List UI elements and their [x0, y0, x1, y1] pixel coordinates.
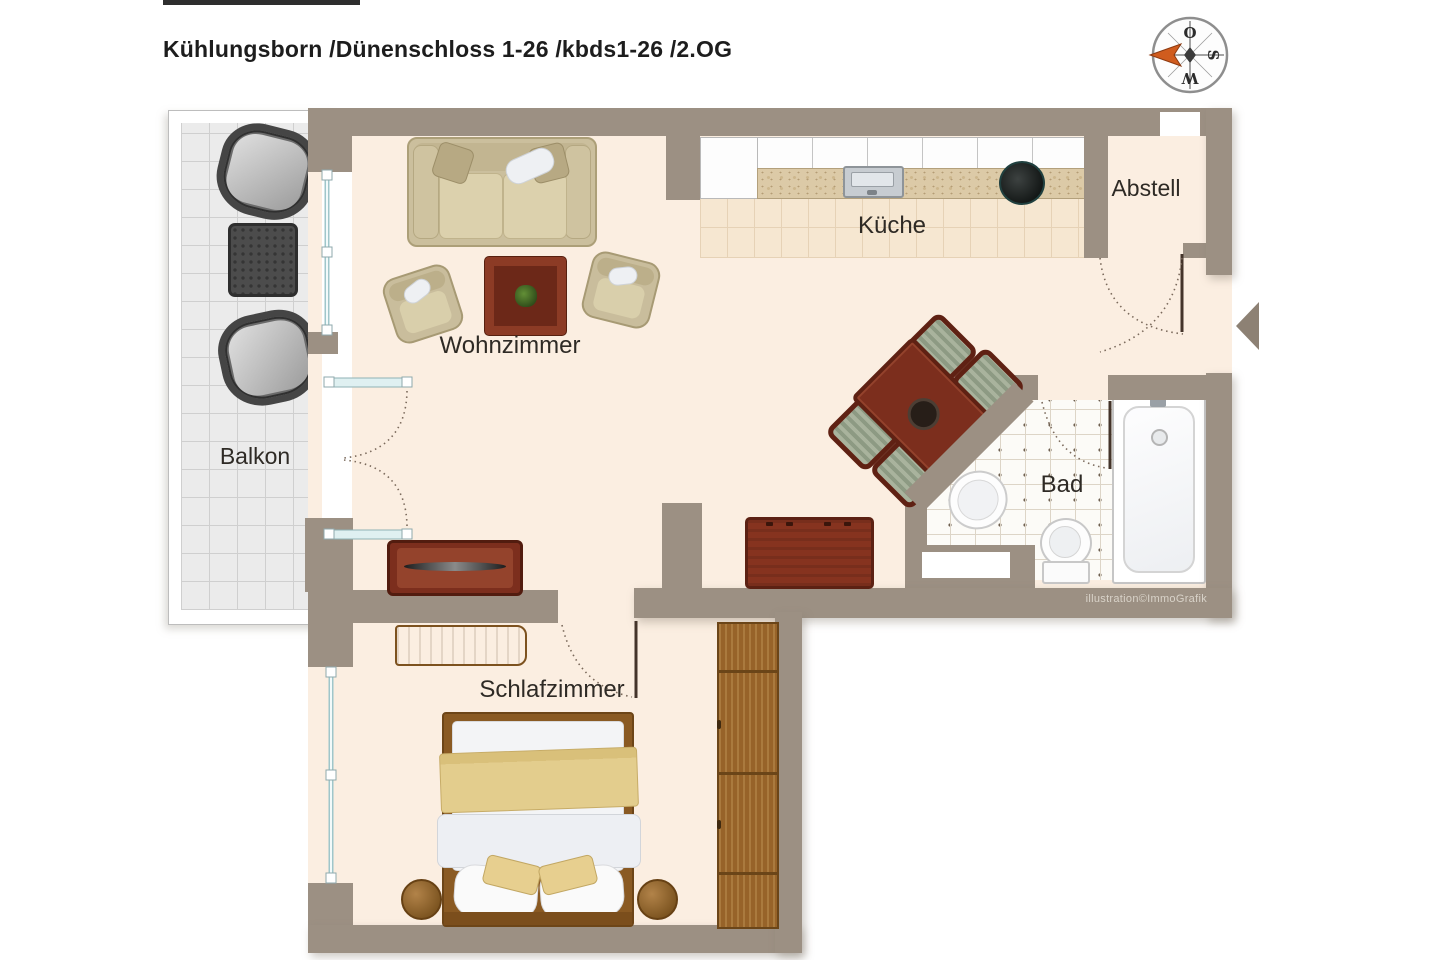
- balcony-window: [322, 170, 332, 335]
- label-kitchen: Küche: [842, 212, 942, 240]
- balcony-door[interactable]: [324, 377, 412, 539]
- entrance-door[interactable]: [1100, 254, 1183, 352]
- label-bath: Bad: [1030, 471, 1094, 499]
- plan-overlay: O S W: [0, 0, 1440, 960]
- entrance-arrow-icon: [1236, 302, 1259, 350]
- label-bedroom: Schlafzimmer: [472, 676, 632, 704]
- illustration-credit: illustration©ImmoGrafik: [995, 593, 1207, 605]
- bedroom-window: [326, 667, 336, 883]
- compass-east-label: O: [1183, 24, 1196, 42]
- compass-south-label: S: [1204, 50, 1222, 61]
- compass-icon: O S W: [1150, 18, 1227, 92]
- compass-west-label: W: [1180, 69, 1199, 87]
- wall-bath-diagonal: [914, 392, 1024, 502]
- floor-plan-page: Kühlungsborn /Dünenschloss 1-26 /kbds1-2…: [0, 0, 1440, 960]
- label-balcony: Balkon: [205, 443, 305, 470]
- label-living-room: Wohnzimmer: [425, 332, 595, 360]
- label-storage: Abstell: [1096, 175, 1196, 202]
- bath-door[interactable]: [1042, 401, 1110, 469]
